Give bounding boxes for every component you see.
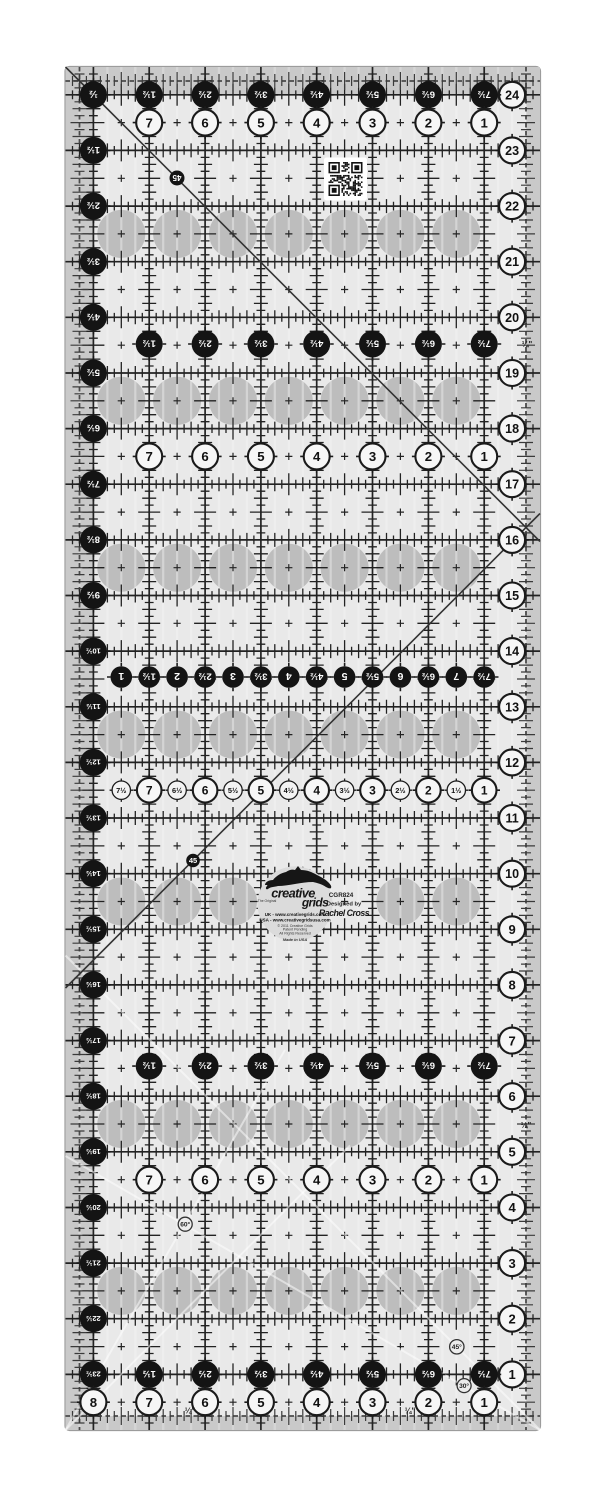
svg-text:5: 5 xyxy=(257,449,264,464)
svg-text:1½: 1½ xyxy=(143,671,156,682)
svg-text:8½: 8½ xyxy=(87,534,100,545)
svg-text:2½: 2½ xyxy=(198,338,211,349)
svg-text:5: 5 xyxy=(508,1145,515,1160)
svg-text:19½: 19½ xyxy=(86,1147,101,1156)
svg-text:4½: 4½ xyxy=(310,338,323,349)
svg-text:4½: 4½ xyxy=(310,1368,323,1379)
svg-text:6: 6 xyxy=(201,1173,208,1188)
svg-text:6½: 6½ xyxy=(172,786,182,795)
svg-text:7½: 7½ xyxy=(87,478,100,489)
svg-text:3: 3 xyxy=(369,1173,376,1188)
svg-text:4½: 4½ xyxy=(87,311,100,322)
svg-text:11½: 11½ xyxy=(86,702,100,711)
svg-text:11: 11 xyxy=(505,812,518,826)
svg-text:5½: 5½ xyxy=(366,1060,379,1071)
svg-text:¼": ¼" xyxy=(405,1407,416,1416)
svg-text:6½: 6½ xyxy=(87,422,100,433)
svg-text:24: 24 xyxy=(505,88,519,102)
svg-text:2: 2 xyxy=(174,670,180,682)
svg-text:14½: 14½ xyxy=(86,869,101,878)
svg-text:1½: 1½ xyxy=(143,88,156,99)
svg-text:4: 4 xyxy=(313,1395,321,1410)
svg-text:5½: 5½ xyxy=(366,1368,379,1379)
svg-text:7: 7 xyxy=(146,1395,153,1410)
svg-text:7: 7 xyxy=(508,1033,515,1048)
svg-text:5: 5 xyxy=(342,670,348,682)
svg-text:3: 3 xyxy=(369,449,376,464)
svg-text:4: 4 xyxy=(286,670,292,682)
svg-text:3: 3 xyxy=(508,1256,515,1271)
svg-text:5½: 5½ xyxy=(366,338,379,349)
svg-text:6½: 6½ xyxy=(422,88,435,99)
svg-text:All Rights Reserved: All Rights Reserved xyxy=(279,931,311,935)
svg-text:7: 7 xyxy=(146,115,153,130)
svg-text:6: 6 xyxy=(201,449,208,464)
svg-text:10½: 10½ xyxy=(86,646,101,655)
svg-text:7½: 7½ xyxy=(478,1368,491,1379)
svg-text:1: 1 xyxy=(481,1173,488,1188)
svg-text:3: 3 xyxy=(369,115,376,130)
svg-text:¼": ¼" xyxy=(185,1407,196,1416)
svg-text:18½: 18½ xyxy=(86,1091,101,1100)
svg-text:23½: 23½ xyxy=(86,1370,101,1379)
svg-text:1½: 1½ xyxy=(143,338,156,349)
svg-text:1½: 1½ xyxy=(143,1368,156,1379)
svg-text:19: 19 xyxy=(505,367,519,381)
svg-text:UK - www.creativegrids.com: UK - www.creativegrids.com xyxy=(265,912,326,917)
svg-text:4½: 4½ xyxy=(310,1060,323,1071)
svg-text:6: 6 xyxy=(201,1395,208,1410)
svg-text:3½: 3½ xyxy=(254,338,267,349)
svg-text:60°: 60° xyxy=(180,1221,190,1229)
svg-text:45°: 45° xyxy=(452,1343,462,1351)
svg-text:16½: 16½ xyxy=(86,980,101,989)
svg-text:3½: 3½ xyxy=(339,786,349,795)
svg-text:½: ½ xyxy=(89,88,98,100)
svg-text:23: 23 xyxy=(505,144,519,158)
svg-text:22½: 22½ xyxy=(86,1314,101,1323)
svg-text:5: 5 xyxy=(257,1395,264,1410)
svg-text:6½: 6½ xyxy=(422,1060,435,1071)
svg-text:7½: 7½ xyxy=(478,671,491,682)
svg-text:Designed by: Designed by xyxy=(327,902,362,908)
svg-text:9: 9 xyxy=(508,922,515,937)
svg-text:3½: 3½ xyxy=(254,88,267,99)
svg-text:10: 10 xyxy=(505,867,519,881)
svg-text:1: 1 xyxy=(481,1395,488,1410)
svg-text:22: 22 xyxy=(505,200,519,214)
svg-text:7½: 7½ xyxy=(478,1060,491,1071)
svg-text:5: 5 xyxy=(258,784,265,798)
svg-text:7: 7 xyxy=(146,449,153,464)
svg-text:45: 45 xyxy=(189,856,197,865)
svg-text:¼": ¼" xyxy=(521,1121,532,1130)
svg-text:2: 2 xyxy=(425,115,432,130)
svg-text:1: 1 xyxy=(481,784,488,798)
svg-text:7: 7 xyxy=(146,1173,153,1188)
svg-text:4: 4 xyxy=(313,784,320,798)
svg-text:6: 6 xyxy=(397,670,403,682)
svg-text:6½: 6½ xyxy=(422,1368,435,1379)
svg-text:8: 8 xyxy=(90,1395,97,1410)
svg-text:6: 6 xyxy=(202,784,209,798)
svg-text:4½: 4½ xyxy=(310,88,323,99)
svg-text:2½: 2½ xyxy=(87,200,100,211)
svg-text:7: 7 xyxy=(453,670,459,682)
svg-text:15: 15 xyxy=(505,589,519,603)
svg-text:2½: 2½ xyxy=(198,671,211,682)
svg-text:2: 2 xyxy=(425,1173,432,1188)
svg-text:12: 12 xyxy=(505,756,519,770)
svg-text:5½: 5½ xyxy=(87,367,100,378)
svg-text:2: 2 xyxy=(508,1311,515,1326)
svg-text:21½: 21½ xyxy=(86,1258,101,1267)
svg-text:5½: 5½ xyxy=(366,671,379,682)
svg-text:5: 5 xyxy=(257,115,264,130)
svg-text:¼": ¼" xyxy=(522,340,533,349)
svg-text:3½: 3½ xyxy=(254,1368,267,1379)
svg-text:4½: 4½ xyxy=(284,786,294,795)
svg-text:1: 1 xyxy=(481,115,488,130)
svg-text:3½: 3½ xyxy=(254,671,267,682)
svg-text:2: 2 xyxy=(425,1395,432,1410)
svg-text:2½: 2½ xyxy=(198,88,211,99)
svg-text:1: 1 xyxy=(481,449,488,464)
svg-text:3½: 3½ xyxy=(87,255,100,266)
svg-text:3½: 3½ xyxy=(254,1060,267,1071)
svg-text:16: 16 xyxy=(505,533,519,547)
svg-text:4: 4 xyxy=(313,115,321,130)
svg-text:2½: 2½ xyxy=(198,1368,211,1379)
svg-text:21: 21 xyxy=(505,255,519,269)
svg-text:6: 6 xyxy=(508,1089,515,1104)
svg-text:4: 4 xyxy=(508,1200,516,1215)
svg-text:3: 3 xyxy=(369,784,376,798)
svg-text:7: 7 xyxy=(146,784,153,798)
svg-text:5½: 5½ xyxy=(366,88,379,99)
svg-text:4: 4 xyxy=(313,1173,321,1188)
svg-text:7½: 7½ xyxy=(478,88,491,99)
svg-text:3: 3 xyxy=(230,670,236,682)
svg-text:CGR824: CGR824 xyxy=(329,892,354,899)
svg-text:6: 6 xyxy=(201,115,208,130)
svg-text:5½: 5½ xyxy=(228,786,238,795)
svg-text:18: 18 xyxy=(505,422,519,436)
svg-text:1½: 1½ xyxy=(87,144,100,155)
svg-text:Rachel Cross: Rachel Cross xyxy=(319,908,370,918)
svg-text:13: 13 xyxy=(505,700,519,714)
svg-text:17: 17 xyxy=(505,478,519,492)
svg-text:4: 4 xyxy=(313,449,321,464)
svg-text:9½: 9½ xyxy=(87,589,100,600)
svg-text:The Original: The Original xyxy=(258,899,277,903)
svg-text:3: 3 xyxy=(369,1395,376,1410)
svg-text:2: 2 xyxy=(425,449,432,464)
svg-text:20: 20 xyxy=(505,311,519,325)
svg-text:15½: 15½ xyxy=(86,925,101,934)
svg-text:USA - www.creativegridsusa.com: USA - www.creativegridsusa.com xyxy=(259,917,330,922)
svg-text:7½: 7½ xyxy=(478,338,491,349)
svg-text:1: 1 xyxy=(118,670,124,682)
svg-text:8: 8 xyxy=(508,978,515,993)
svg-text:Made in USA: Made in USA xyxy=(283,937,308,942)
svg-text:7½: 7½ xyxy=(116,786,126,795)
svg-text:1½: 1½ xyxy=(451,786,461,795)
svg-text:2½: 2½ xyxy=(198,1060,211,1071)
svg-text:5: 5 xyxy=(257,1173,264,1188)
svg-text:45: 45 xyxy=(172,173,181,182)
svg-text:6½: 6½ xyxy=(422,338,435,349)
svg-text:14: 14 xyxy=(505,645,519,659)
svg-text:1½: 1½ xyxy=(143,1060,156,1071)
svg-text:6½: 6½ xyxy=(422,671,435,682)
svg-text:12½: 12½ xyxy=(86,758,101,767)
svg-text:20½: 20½ xyxy=(86,1203,101,1212)
svg-text:30°: 30° xyxy=(459,1382,469,1390)
svg-text:13½: 13½ xyxy=(86,813,101,822)
svg-text:17½: 17½ xyxy=(86,1036,101,1045)
svg-text:2: 2 xyxy=(425,784,432,798)
svg-text:2½: 2½ xyxy=(395,786,405,795)
svg-text:1: 1 xyxy=(508,1367,515,1382)
svg-text:4½: 4½ xyxy=(310,671,323,682)
